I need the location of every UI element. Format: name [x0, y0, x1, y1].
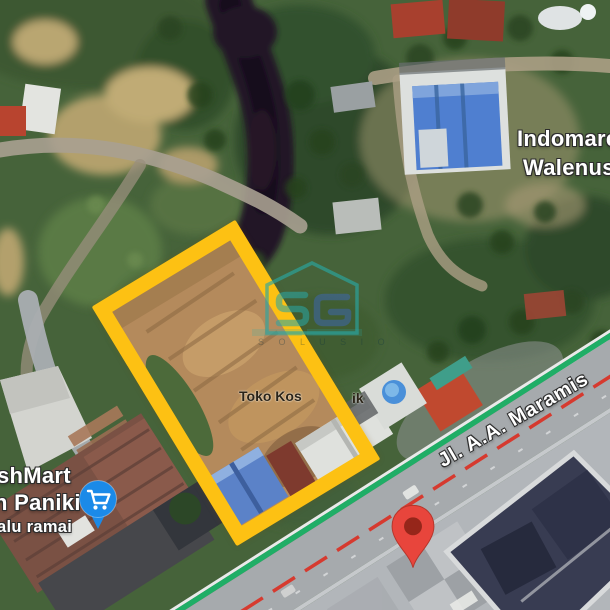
- poi-label-freshmart-status: alu ramai: [0, 519, 72, 536]
- poi-label-freshmart-line1[interactable]: shMart: [0, 464, 71, 487]
- shopping-cart-icon[interactable]: [78, 479, 118, 531]
- watermark-logo: S O L U S I O N: [240, 250, 400, 360]
- poi-label-indomaret-line1[interactable]: Indomaret: [517, 127, 610, 150]
- poi-label-freshmart-line2[interactable]: n Paniki: [0, 491, 81, 514]
- satellite-map-canvas[interactable]: Toko Kos ik Indomaret Walenusa shMart n …: [0, 0, 610, 610]
- poi-label-indomaret-line2[interactable]: Walenusa: [523, 156, 610, 179]
- map-pin-icon[interactable]: [388, 503, 438, 570]
- poi-label-toko-right[interactable]: ik: [352, 390, 364, 406]
- watermark-subtext: S O L U S I O N: [258, 337, 400, 347]
